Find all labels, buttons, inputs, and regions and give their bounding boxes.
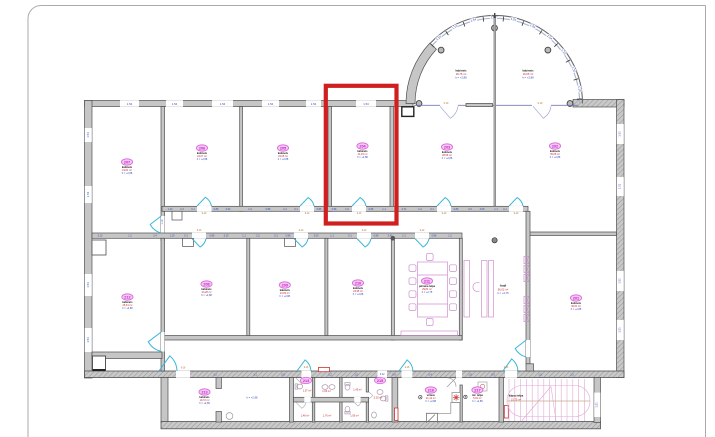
svg-text:h = +2,88: h = +2,88 bbox=[280, 295, 291, 298]
svg-text:1.10: 1.10 bbox=[170, 235, 175, 238]
svg-text:h = +2,88: h = +2,88 bbox=[426, 400, 437, 403]
svg-text:2.3: 2.3 bbox=[180, 208, 184, 211]
svg-text:207: 207 bbox=[124, 160, 130, 164]
svg-text:1.54: 1.54 bbox=[86, 132, 90, 138]
svg-text:1.51: 1.51 bbox=[618, 183, 622, 189]
svg-text:217: 217 bbox=[474, 388, 480, 392]
svg-text:2.0: 2.0 bbox=[468, 208, 472, 211]
svg-text:0.1: 0.1 bbox=[191, 208, 195, 211]
svg-text:kabinets: kabinets bbox=[523, 69, 534, 73]
svg-text:1.2: 1.2 bbox=[248, 208, 252, 211]
svg-text:216: 216 bbox=[428, 388, 434, 392]
svg-text:0.86: 0.86 bbox=[286, 235, 291, 238]
svg-text:202: 202 bbox=[552, 144, 558, 148]
svg-text:2.71: 2.71 bbox=[402, 208, 407, 211]
svg-text:9-16: 9-16 bbox=[181, 368, 186, 370]
svg-text:h = +2,89: h = +2,89 bbox=[199, 402, 210, 405]
svg-text:0.86: 0.86 bbox=[374, 235, 379, 238]
svg-text:3.00: 3.00 bbox=[314, 235, 319, 238]
svg-text:214: 214 bbox=[303, 379, 310, 383]
svg-text:h = +2,88: h = +2,88 bbox=[353, 293, 364, 296]
svg-text:2.4: 2.4 bbox=[153, 235, 157, 238]
svg-text:h = +2,98: h = +2,98 bbox=[247, 396, 259, 400]
svg-text:19,05 m²: 19,05 m² bbox=[523, 72, 534, 76]
svg-text:2.40: 2.40 bbox=[388, 235, 393, 238]
svg-text:1.54: 1.54 bbox=[268, 102, 274, 106]
svg-text:h = +2,75: h = +2,75 bbox=[497, 291, 509, 295]
svg-text:2.96: 2.96 bbox=[332, 208, 337, 211]
svg-text:1.10: 1.10 bbox=[168, 208, 173, 211]
svg-text:h = +2,88: h = +2,88 bbox=[278, 158, 289, 161]
svg-text:1.0: 1.0 bbox=[345, 208, 349, 211]
svg-text:0.1: 0.1 bbox=[274, 235, 278, 238]
svg-text:1.1: 1.1 bbox=[494, 208, 498, 211]
svg-text:0.86: 0.86 bbox=[317, 208, 322, 211]
svg-text:0.86: 0.86 bbox=[210, 235, 215, 238]
svg-text:1.2: 1.2 bbox=[418, 208, 422, 211]
svg-text:h = +2,88: h = +2,88 bbox=[122, 307, 133, 310]
svg-text:0.1: 0.1 bbox=[294, 208, 298, 211]
svg-text:9.19: 9.19 bbox=[538, 102, 543, 105]
svg-text:1.51: 1.51 bbox=[618, 131, 622, 137]
svg-text:3.24: 3.24 bbox=[226, 208, 231, 211]
svg-text:211: 211 bbox=[424, 279, 430, 283]
svg-text:18,76 m²: 18,76 m² bbox=[456, 72, 467, 76]
svg-text:h = +2,88: h = +2,88 bbox=[442, 157, 453, 160]
svg-text:1,07 m²: 1,07 m² bbox=[303, 390, 312, 393]
svg-text:56,02 m²: 56,02 m² bbox=[498, 287, 509, 291]
svg-text:208: 208 bbox=[203, 282, 209, 286]
svg-text:9-10: 9-10 bbox=[514, 213, 519, 215]
svg-text:15,75 m²: 15,75 m² bbox=[511, 397, 521, 401]
svg-text:206: 206 bbox=[199, 146, 205, 150]
svg-text:h = +2,88: h = +2,88 bbox=[201, 294, 212, 297]
svg-text:1.51: 1.51 bbox=[618, 278, 622, 284]
svg-text:0.1: 0.1 bbox=[503, 208, 507, 211]
svg-text:0.86: 0.86 bbox=[266, 208, 271, 211]
svg-text:0.12: 0.12 bbox=[380, 373, 385, 376]
svg-text:9-16: 9-16 bbox=[304, 367, 309, 369]
svg-text:foajē: foajē bbox=[500, 284, 507, 288]
svg-text:2.2: 2.2 bbox=[256, 235, 260, 238]
svg-text:201: 201 bbox=[573, 296, 579, 300]
svg-text:h = +2,88: h = +2,88 bbox=[472, 400, 483, 403]
svg-text:1.2: 1.2 bbox=[448, 235, 452, 238]
svg-text:210: 210 bbox=[355, 281, 361, 285]
svg-text:h = +2,88: h = +2,88 bbox=[522, 76, 534, 80]
svg-text:h = +2,88: h = +2,88 bbox=[455, 76, 467, 80]
svg-text:204: 204 bbox=[359, 144, 366, 148]
svg-text:h = +2,75: h = +2,75 bbox=[422, 291, 433, 294]
svg-text:3.10: 3.10 bbox=[98, 235, 103, 238]
svg-text:9-16: 9-16 bbox=[504, 367, 509, 369]
svg-text:1,45 m²: 1,45 m² bbox=[353, 389, 362, 392]
svg-text:209: 209 bbox=[282, 283, 288, 287]
svg-text:213: 213 bbox=[201, 390, 207, 394]
svg-text:1,95 m²: 1,95 m² bbox=[350, 415, 359, 418]
svg-text:1.54: 1.54 bbox=[86, 282, 90, 288]
svg-text:h = +2,88: h = +2,88 bbox=[571, 308, 582, 311]
svg-text:5,25 m²: 5,25 m² bbox=[374, 397, 383, 400]
svg-text:h = +2,88: h = +2,88 bbox=[357, 156, 368, 159]
svg-text:1.1: 1.1 bbox=[382, 208, 386, 211]
svg-text:1.1: 1.1 bbox=[242, 235, 246, 238]
svg-text:0.86: 0.86 bbox=[369, 208, 374, 211]
svg-text:0.86: 0.86 bbox=[432, 235, 437, 238]
svg-text:3.10: 3.10 bbox=[224, 235, 229, 238]
svg-text:9-10: 9-10 bbox=[299, 230, 304, 232]
svg-text:0.86: 0.86 bbox=[454, 208, 459, 211]
svg-text:kabinets: kabinets bbox=[456, 69, 467, 73]
svg-text:9.19: 9.19 bbox=[444, 102, 449, 105]
svg-text:0.1: 0.1 bbox=[184, 235, 188, 238]
svg-text:1.54: 1.54 bbox=[127, 102, 133, 106]
svg-text:1.10: 1.10 bbox=[161, 219, 164, 224]
svg-text:9-10: 9-10 bbox=[442, 213, 447, 215]
svg-text:1,48 m²: 1,48 m² bbox=[301, 415, 310, 418]
svg-text:h = +2,88: h = +2,88 bbox=[197, 158, 208, 161]
svg-text:1.54: 1.54 bbox=[363, 102, 369, 106]
svg-text:205: 205 bbox=[280, 146, 286, 150]
svg-text:9-10: 9-10 bbox=[362, 230, 367, 232]
svg-text:1.54: 1.54 bbox=[311, 102, 317, 106]
svg-text:9-10: 9-10 bbox=[305, 213, 310, 215]
svg-text:2.1: 2.1 bbox=[283, 208, 287, 211]
svg-text:h = +2,88: h = +2,88 bbox=[550, 156, 561, 159]
svg-text:1,03 m²: 1,03 m² bbox=[322, 390, 331, 393]
svg-text:0.1: 0.1 bbox=[348, 235, 352, 238]
svg-text:kāpņu telpa: kāpņu telpa bbox=[509, 394, 524, 398]
svg-text:1.54: 1.54 bbox=[86, 337, 90, 343]
svg-text:1.1: 1.1 bbox=[402, 235, 406, 238]
svg-text:h = +2,88: h = +2,88 bbox=[122, 172, 133, 175]
svg-text:1.54: 1.54 bbox=[86, 191, 90, 197]
svg-text:9-10: 9-10 bbox=[420, 230, 425, 232]
svg-text:1.51: 1.51 bbox=[618, 327, 622, 333]
svg-text:9-10: 9-10 bbox=[202, 213, 207, 215]
svg-text:9-10: 9-10 bbox=[197, 230, 202, 232]
svg-text:1.2: 1.2 bbox=[128, 235, 132, 238]
svg-text:1.1: 1.1 bbox=[330, 235, 334, 238]
svg-text:0.1: 0.1 bbox=[430, 208, 434, 211]
svg-text:203: 203 bbox=[444, 145, 450, 149]
svg-text:0.86: 0.86 bbox=[214, 208, 219, 211]
svg-text:1.54: 1.54 bbox=[172, 102, 178, 106]
svg-text:1,51: 1,51 bbox=[595, 402, 599, 408]
svg-text:1.54: 1.54 bbox=[220, 102, 226, 106]
svg-text:1,76 m²: 1,76 m² bbox=[323, 415, 332, 418]
svg-text:9-10: 9-10 bbox=[357, 213, 362, 215]
svg-text:215: 215 bbox=[377, 379, 383, 383]
svg-text:9-16: 9-16 bbox=[405, 367, 410, 369]
svg-text:4.05: 4.05 bbox=[480, 208, 485, 211]
svg-text:212: 212 bbox=[124, 295, 130, 299]
